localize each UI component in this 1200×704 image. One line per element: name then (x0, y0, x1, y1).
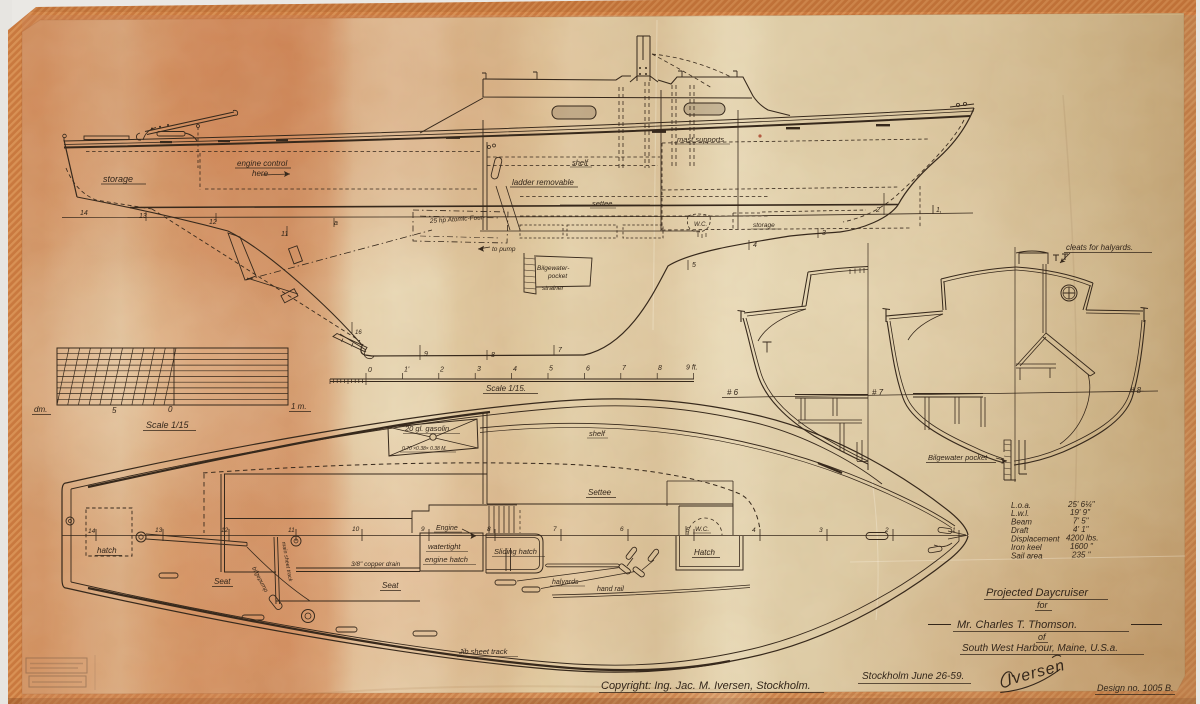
svg-text:Sail area: Sail area (1011, 552, 1043, 561)
svg-text:16: 16 (355, 330, 362, 336)
svg-text:4: 4 (753, 242, 757, 249)
svg-text:Hatch: Hatch (694, 548, 715, 557)
svg-text:12: 12 (209, 219, 217, 226)
svg-text:Sliding hatch: Sliding hatch (494, 547, 537, 556)
svg-text:9 ft.: 9 ft. (686, 365, 698, 372)
svg-text:engine control: engine control (237, 159, 287, 168)
svg-text:6: 6 (586, 366, 590, 373)
svg-text:Settee: Settee (588, 488, 612, 497)
svg-text:13: 13 (155, 527, 163, 534)
svg-text:14: 14 (88, 528, 96, 535)
svg-text:8: 8 (658, 365, 662, 372)
svg-text:# 8: # 8 (1130, 386, 1142, 395)
svg-text:Bilgewater-: Bilgewater- (537, 265, 570, 272)
svg-text:W.C.: W.C. (695, 526, 709, 533)
svg-text:for: for (1037, 600, 1049, 610)
svg-text:6: 6 (620, 526, 624, 533)
svg-text:5: 5 (686, 527, 690, 534)
svg-text:0: 0 (368, 367, 372, 374)
svg-text:Bilgewater pocket: Bilgewater pocket (928, 453, 988, 462)
svg-text:storage: storage (753, 222, 775, 229)
svg-text:Seat: Seat (214, 577, 231, 586)
svg-text:ladder removable: ladder removable (512, 178, 574, 187)
svg-text:Jib sheet track: Jib sheet track (458, 647, 509, 656)
svg-text:to pump: to pump (492, 246, 516, 253)
svg-text:3/8" copper drain: 3/8" copper drain (351, 561, 401, 568)
svg-text:hand rail: hand rail (597, 586, 624, 593)
svg-text:strainer: strainer (542, 285, 565, 292)
svg-text:Stockholm June 26-59.: Stockholm June 26-59. (862, 671, 964, 682)
svg-text:hatch: hatch (97, 546, 117, 555)
svg-text:# 6: # 6 (727, 388, 739, 397)
svg-text:halyards: halyards (552, 579, 579, 586)
svg-text:1 m.: 1 m. (291, 402, 307, 411)
svg-text:3: 3 (822, 230, 826, 237)
svg-text:2: 2 (875, 207, 880, 214)
svg-text:Mr. Charles T. Thomson.: Mr. Charles T. Thomson. (957, 619, 1077, 631)
svg-text:11: 11 (281, 231, 288, 238)
svg-text:1': 1' (404, 367, 410, 374)
svg-text:5: 5 (112, 406, 117, 415)
svg-text:0.70 ×0.38× 0.38 M.: 0.70 ×0.38× 0.38 M. (402, 446, 447, 452)
svg-text:Seat: Seat (382, 581, 399, 590)
svg-text:13: 13 (139, 213, 147, 220)
svg-text:5: 5 (549, 366, 553, 373)
svg-text:1: 1 (952, 527, 956, 534)
svg-text:South West Harbour, Maine, U.S: South West Harbour, Maine, U.S.a. (962, 643, 1118, 654)
svg-text:2: 2 (439, 367, 444, 374)
svg-text:0: 0 (168, 405, 173, 414)
svg-text:a: a (334, 220, 338, 227)
svg-text:mast supports: mast supports (677, 135, 724, 144)
svg-text:engine hatch: engine hatch (425, 555, 468, 564)
svg-text:cleats for halyards.: cleats for halyards. (1066, 243, 1133, 252)
svg-text:11: 11 (288, 527, 295, 534)
svg-text:7: 7 (553, 526, 557, 533)
svg-text:14: 14 (80, 210, 88, 217)
svg-text:Copyright: Ing. Jac. M. Iverse: Copyright: Ing. Jac. M. Iversen, Stockho… (601, 680, 811, 692)
svg-text:W.C.: W.C. (694, 222, 707, 228)
svg-text:1,: 1, (936, 207, 942, 214)
svg-text:pocket: pocket (547, 273, 568, 280)
svg-text:dm.: dm. (34, 405, 47, 414)
svg-text:3: 3 (477, 366, 481, 373)
svg-text:8: 8 (487, 526, 491, 533)
svg-text:3: 3 (819, 527, 823, 534)
svg-text:10: 10 (352, 526, 360, 533)
svg-text:here: here (252, 169, 269, 178)
svg-text:Projected Daycruiser: Projected Daycruiser (986, 587, 1089, 599)
svg-text:4: 4 (752, 527, 756, 534)
svg-text:8: 8 (491, 352, 495, 359)
svg-text:9: 9 (421, 526, 425, 533)
svg-text:shelf: shelf (589, 429, 606, 438)
svg-text:9: 9 (424, 351, 428, 358)
svg-text:watertight: watertight (428, 542, 461, 551)
svg-text:4: 4 (513, 366, 517, 373)
svg-text:Engine: Engine (436, 525, 458, 532)
svg-text:settee: settee (592, 199, 612, 208)
svg-text:12: 12 (221, 527, 229, 534)
svg-text:Design no. 1005 B.: Design no. 1005 B. (1097, 683, 1174, 693)
svg-text:# 7: # 7 (872, 388, 884, 397)
svg-text:shelf: shelf (572, 158, 589, 167)
svg-text:20 gl. gasolin: 20 gl. gasolin (404, 424, 449, 433)
svg-text:5: 5 (692, 262, 696, 269)
svg-text:Scale 1/15.: Scale 1/15. (486, 384, 526, 393)
svg-text:235 ": 235 " (1071, 551, 1092, 560)
svg-text:storage: storage (103, 174, 133, 184)
svg-text:2: 2 (884, 527, 889, 534)
svg-text:Scale 1/15: Scale 1/15 (146, 420, 190, 430)
